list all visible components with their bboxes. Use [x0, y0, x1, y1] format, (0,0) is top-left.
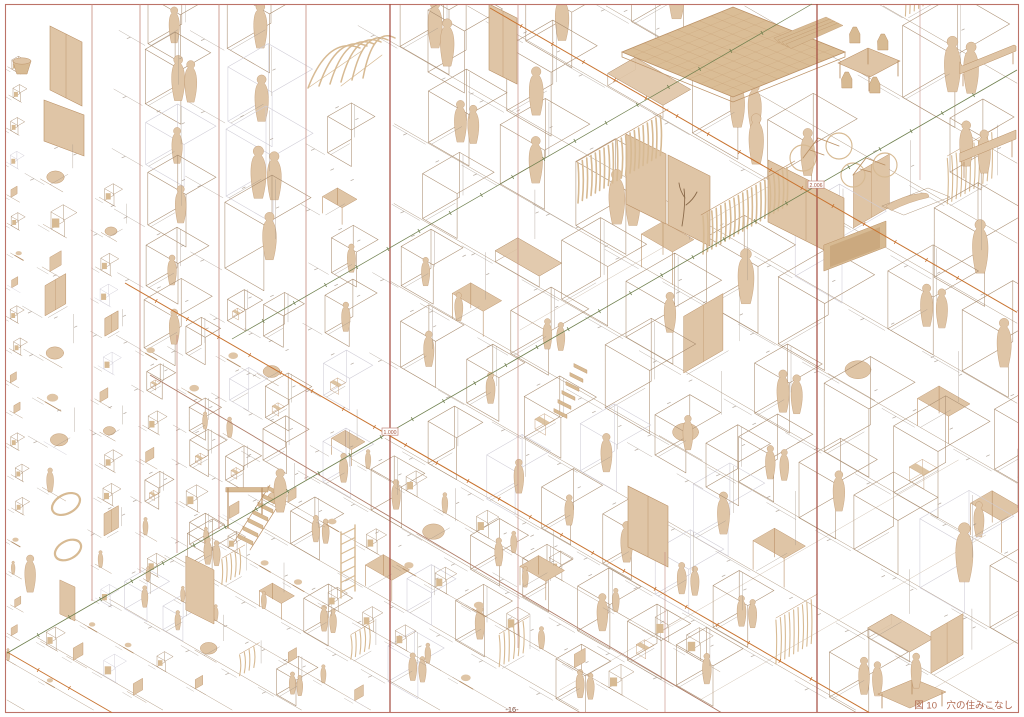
- svg-text:1.000: 1.000: [384, 430, 397, 436]
- svg-text:図 10 穴の住みこなし: 図 10 穴の住みこなし: [914, 700, 1013, 712]
- svg-text:2.006: 2.006: [810, 183, 823, 189]
- svg-text:-16-: -16-: [505, 705, 519, 714]
